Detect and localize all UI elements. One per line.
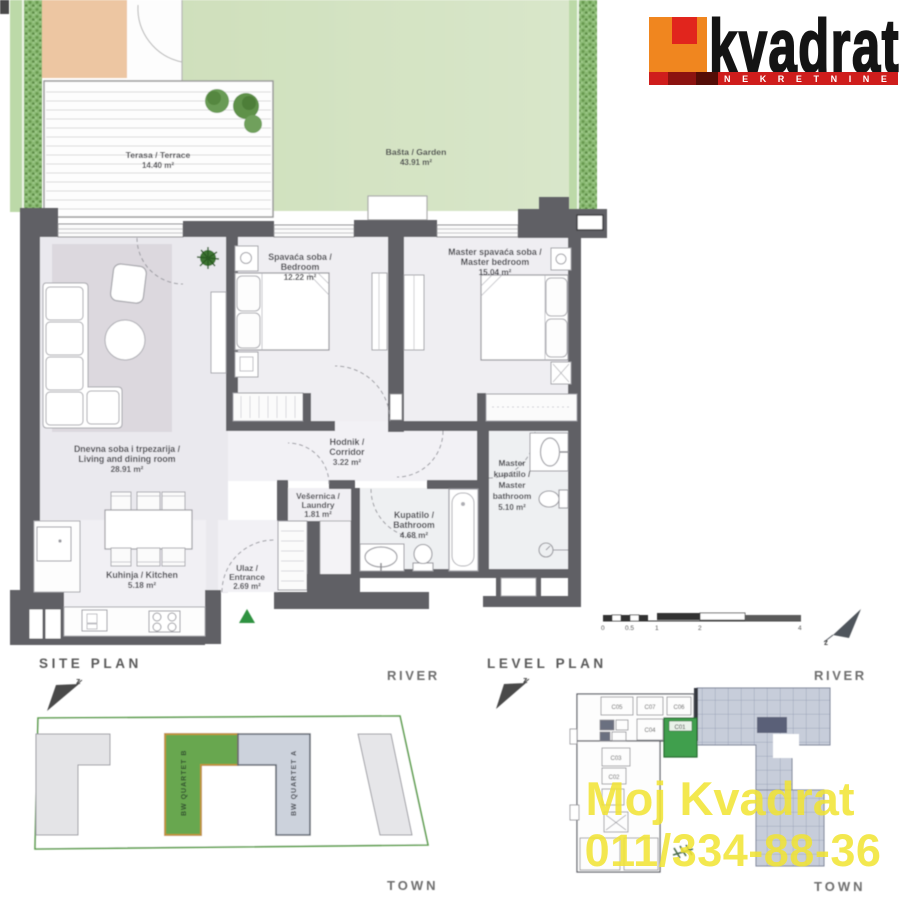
svg-text:3.22 m²: 3.22 m² (333, 458, 361, 467)
svg-text:LEVEL PLAN: LEVEL PLAN (487, 656, 607, 671)
svg-text:BW QUARTET A: BW QUARTET A (291, 750, 298, 816)
svg-text:Kupatilo /: Kupatilo / (394, 510, 435, 520)
svg-text:BW QUARTET B: BW QUARTET B (181, 750, 188, 816)
svg-text:C03: C03 (610, 756, 622, 762)
svg-text:RIVER: RIVER (387, 668, 440, 683)
svg-text:TOWN: TOWN (387, 878, 438, 893)
svg-text:Bedroom: Bedroom (281, 262, 320, 272)
svg-text:5.10 m²: 5.10 m² (498, 503, 526, 512)
svg-text:z: z (76, 676, 81, 686)
svg-text:Bathroom: Bathroom (393, 520, 435, 530)
svg-text:0.5: 0.5 (625, 625, 634, 632)
svg-text:kupatilo /: kupatilo / (494, 469, 531, 479)
svg-text:Terasa / Terrace: Terasa / Terrace (126, 150, 191, 160)
svg-text:Master spavaća soba /: Master spavaća soba / (448, 247, 542, 257)
svg-text:2.69 m²: 2.69 m² (233, 582, 261, 591)
svg-text:C04: C04 (644, 728, 656, 734)
svg-text:Master: Master (499, 480, 527, 490)
svg-text:Entrance: Entrance (229, 572, 265, 582)
svg-text:14.40 m²: 14.40 m² (142, 161, 174, 170)
svg-text:2: 2 (698, 625, 702, 632)
svg-text:4: 4 (798, 625, 802, 632)
svg-text:Kuhinja / Kitchen: Kuhinja / Kitchen (106, 570, 178, 580)
svg-text:4.68 m²: 4.68 m² (400, 531, 428, 540)
svg-text:Corridor: Corridor (329, 447, 365, 457)
svg-text:Laundry: Laundry (301, 500, 334, 510)
svg-text:SITE PLAN: SITE PLAN (39, 656, 142, 671)
svg-text:12.22 m²: 12.22 m² (284, 273, 317, 282)
svg-text:1: 1 (655, 625, 659, 632)
svg-text:Bašta / Garden: Bašta / Garden (386, 147, 447, 157)
svg-text:z: z (523, 675, 528, 685)
svg-text:NEKRETNINE: NEKRETNINE (724, 74, 899, 84)
svg-text:C07: C07 (644, 705, 656, 711)
svg-text:C06: C06 (673, 705, 685, 711)
svg-text:011/334-88-36: 011/334-88-36 (585, 825, 882, 876)
svg-text:Living and dining room: Living and dining room (78, 454, 175, 464)
svg-text:Master: Master (499, 458, 527, 468)
svg-text:Master bedroom: Master bedroom (461, 257, 530, 267)
svg-text:Dnevna soba i trpezarija /: Dnevna soba i trpezarija / (74, 444, 181, 454)
svg-text:C01: C01 (674, 725, 686, 731)
svg-text:C05: C05 (611, 705, 623, 711)
svg-text:z: z (824, 638, 828, 647)
svg-text:43.91 m²: 43.91 m² (400, 158, 432, 167)
svg-text:bathroom: bathroom (493, 491, 532, 501)
svg-text:Moj Kvadrat: Moj Kvadrat (586, 772, 855, 825)
svg-text:15.04 m²: 15.04 m² (479, 268, 512, 277)
svg-text:RIVER: RIVER (814, 668, 867, 683)
svg-text:Spavaća soba /: Spavaća soba / (268, 252, 332, 262)
svg-text:28.91 m²: 28.91 m² (111, 465, 144, 474)
svg-text:0: 0 (601, 625, 605, 632)
svg-text:TOWN: TOWN (814, 879, 865, 894)
svg-text:Hodnik /: Hodnik / (330, 437, 365, 447)
svg-text:5.18 m²: 5.18 m² (128, 581, 156, 590)
svg-text:1.81 m²: 1.81 m² (304, 510, 332, 519)
